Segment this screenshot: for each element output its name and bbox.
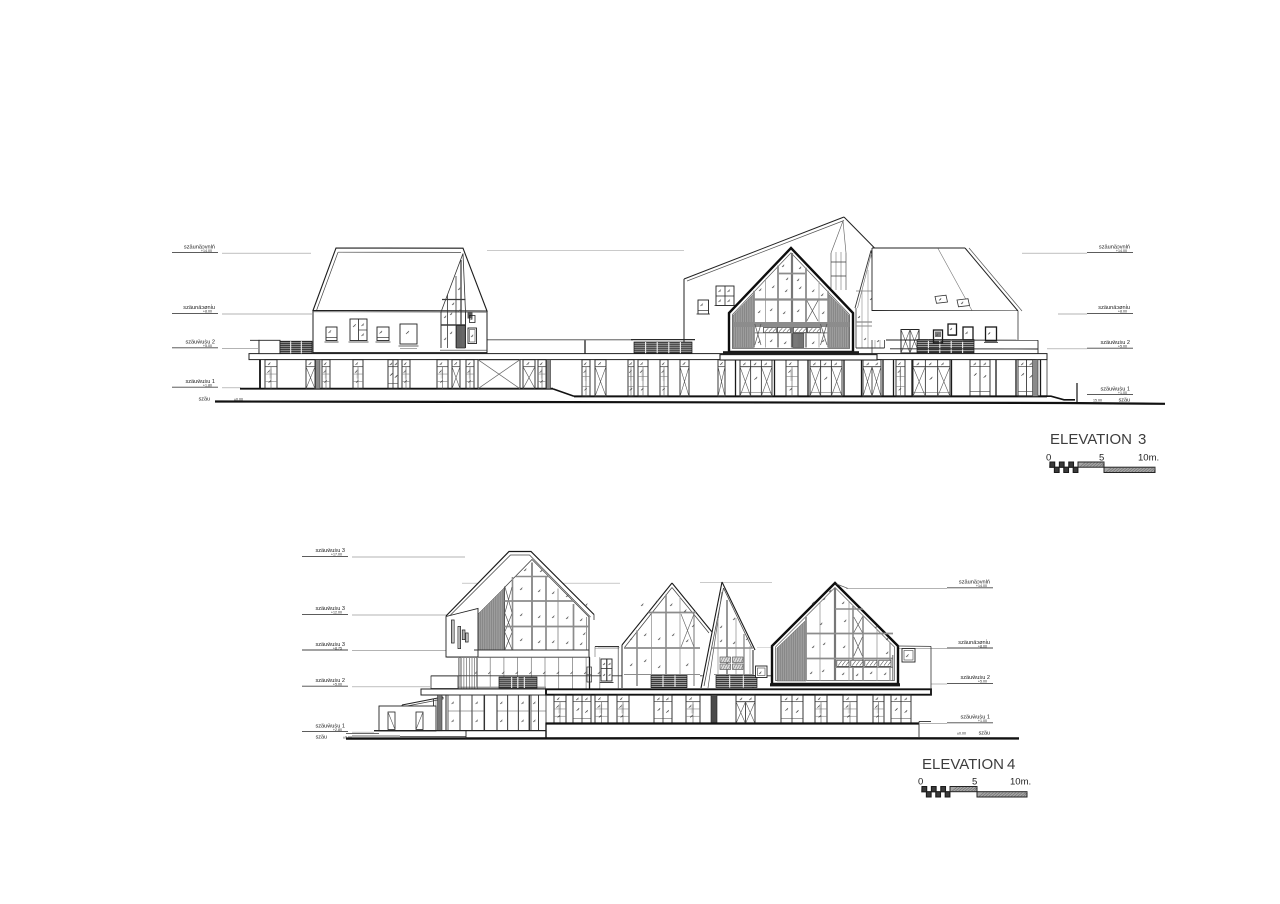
svg-text:szäu: szäu <box>199 397 210 403</box>
svg-text:10m.: 10m. <box>1010 777 1031 788</box>
svg-text:5: 5 <box>972 777 977 788</box>
svg-text:szäu: szäu <box>316 735 327 741</box>
svg-text:ELEVATION: ELEVATION <box>922 756 1004 773</box>
svg-text:0: 0 <box>918 777 923 788</box>
svg-text:10m.: 10m. <box>1138 453 1159 464</box>
svg-text:15.00: 15.00 <box>1093 399 1102 403</box>
svg-text:4: 4 <box>1007 756 1015 773</box>
svg-text:ELEVATION: ELEVATION <box>1050 431 1132 448</box>
svg-text:szäu: szäu <box>979 731 990 737</box>
svg-text:3: 3 <box>1138 431 1146 448</box>
svg-text:±0.00: ±0.00 <box>957 732 966 736</box>
